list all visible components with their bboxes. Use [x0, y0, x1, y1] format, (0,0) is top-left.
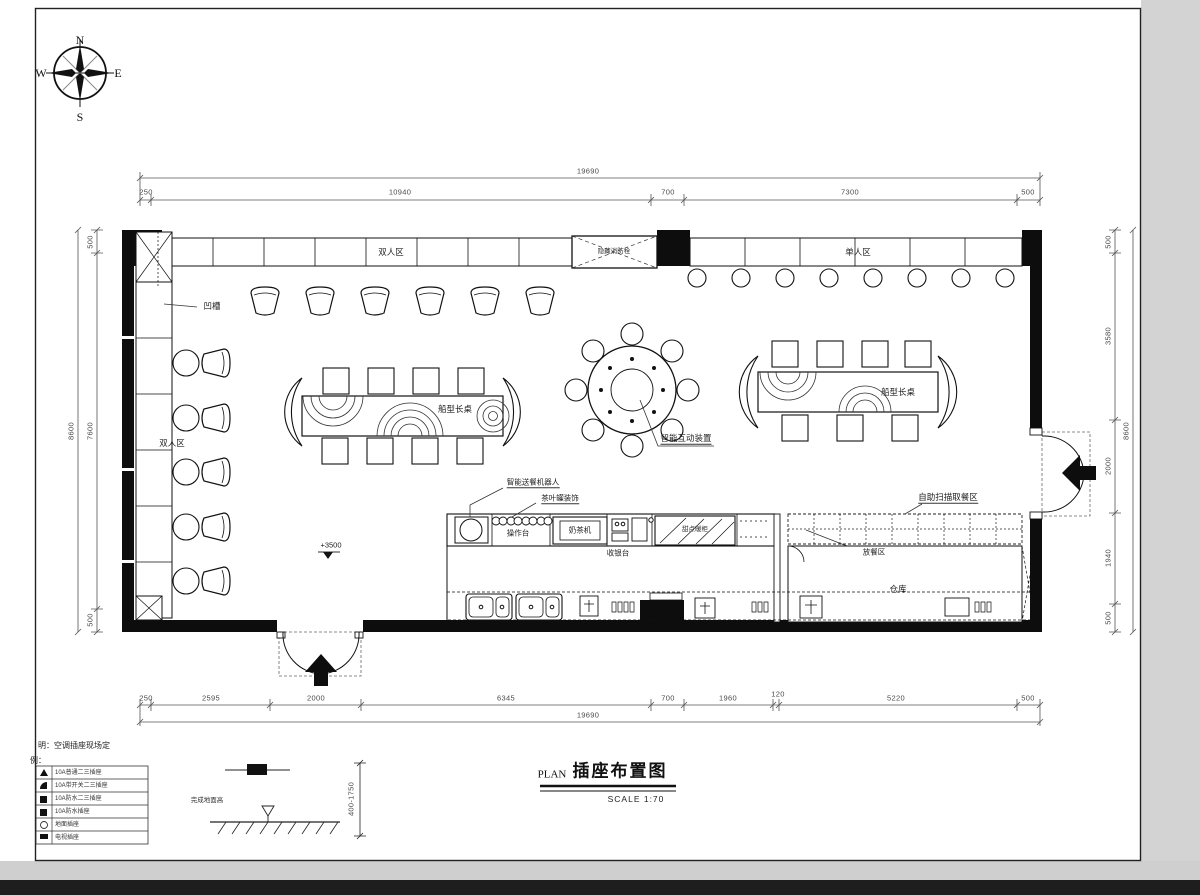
left-bench-band — [136, 232, 172, 620]
label-hidden-fire-hydrant: 隐藏消防栓 — [598, 249, 631, 256]
dim-bottom-seg: 6345 — [497, 694, 515, 702]
mount-height-dim: 400-1750 — [347, 782, 355, 816]
label-double-area-top: 双人区 — [378, 248, 404, 257]
compass-s: S — [77, 111, 84, 123]
dim-bottom-seg: 5220 — [887, 694, 905, 702]
dim-left-seg: 500 — [86, 235, 94, 248]
dim-right-seg: 3580 — [1104, 327, 1112, 345]
dim-bottom-seg: 1960 — [719, 694, 737, 702]
compass-e: E — [114, 67, 121, 79]
label-double-area-left: 双人区 — [159, 439, 185, 448]
label-work-counter: 操作台 — [507, 529, 530, 537]
dim-right-seg: 500 — [1104, 611, 1112, 624]
legend-heading: 例： — [30, 757, 46, 765]
compass-n: N — [76, 34, 85, 46]
label-dessert-cabinet: 甜点暖柜 — [682, 527, 708, 534]
legend-row: 电视插座 — [55, 835, 79, 841]
dim-left-seg: 500 — [86, 613, 94, 626]
label-milk-tea-machine: 奶茶机 — [569, 526, 592, 534]
label-delivery-robot: 智能送餐机器人 — [507, 478, 560, 488]
cad-sheet: N E S W 19690 250 10940 700 7300 500 250… — [0, 0, 1200, 895]
label-boat-table-right: 船型长桌 — [881, 388, 915, 397]
dim-bottom-seg: 120 — [771, 690, 784, 698]
page-title: 插座布置图 — [573, 763, 668, 780]
legend-row: 10A带开关二三插座 — [55, 783, 108, 789]
label-self-scan-pickup: 自助扫描取餐区 — [918, 493, 978, 504]
label-cashier: 收银台 — [607, 549, 630, 557]
label-groove: 凹槽 — [203, 302, 220, 311]
dim-top-seg: 10940 — [389, 188, 411, 196]
dim-right-overall: 8600 — [1122, 422, 1130, 440]
compass-w: W — [35, 67, 46, 79]
legend-row: 10A普通二三插座 — [55, 770, 102, 776]
dim-top-seg: 700 — [661, 188, 674, 196]
taskbar-strip — [0, 880, 1200, 895]
label-ceiling-level: +3500 — [320, 541, 341, 549]
dim-top-seg: 500 — [1021, 188, 1034, 196]
label-boat-table-left: 船型长桌 — [438, 405, 472, 414]
dim-bottom-seg: 2595 — [202, 694, 220, 702]
label-food-serving-area: 放餐区 — [863, 548, 886, 556]
dim-right-seg: 2000 — [1104, 457, 1112, 475]
dim-right-seg: 1940 — [1104, 549, 1112, 567]
dim-bottom-seg: 700 — [661, 694, 674, 702]
dim-left-seg: 7600 — [86, 422, 94, 440]
label-warehouse: 仓库 — [889, 585, 906, 594]
dim-bottom-overall: 19690 — [577, 711, 599, 719]
dim-bottom-seg: 2000 — [307, 694, 325, 702]
floor-finish-label: 完成地面高 — [191, 798, 224, 805]
legend-row: 10A防水二三插座 — [55, 796, 102, 802]
dim-bottom-seg: 500 — [1021, 694, 1034, 702]
plan-prefix: PLAN — [538, 770, 567, 781]
label-interactive-device: 智能互动装置 — [660, 434, 711, 445]
desktop-bottom-margin — [0, 861, 1200, 882]
dim-top-seg: 250 — [139, 188, 152, 196]
dim-right-seg: 500 — [1104, 235, 1112, 248]
label-single-area: 单人区 — [845, 248, 871, 257]
legend-row: 10A防水插座 — [55, 809, 90, 815]
desktop-right-margin — [1141, 0, 1200, 882]
dim-top-overall: 19690 — [577, 167, 599, 175]
dim-left-overall: 8600 — [67, 422, 75, 440]
scale-label: SCALE 1:70 — [608, 795, 665, 804]
label-tea-canister: 茶叶罐装饰 — [541, 494, 579, 504]
site-note: 明：空调插座现场定 — [38, 742, 110, 750]
legend-row: 地面插座 — [55, 822, 79, 828]
dim-top-seg: 7300 — [841, 188, 859, 196]
dim-bottom-seg: 250 — [139, 694, 152, 702]
